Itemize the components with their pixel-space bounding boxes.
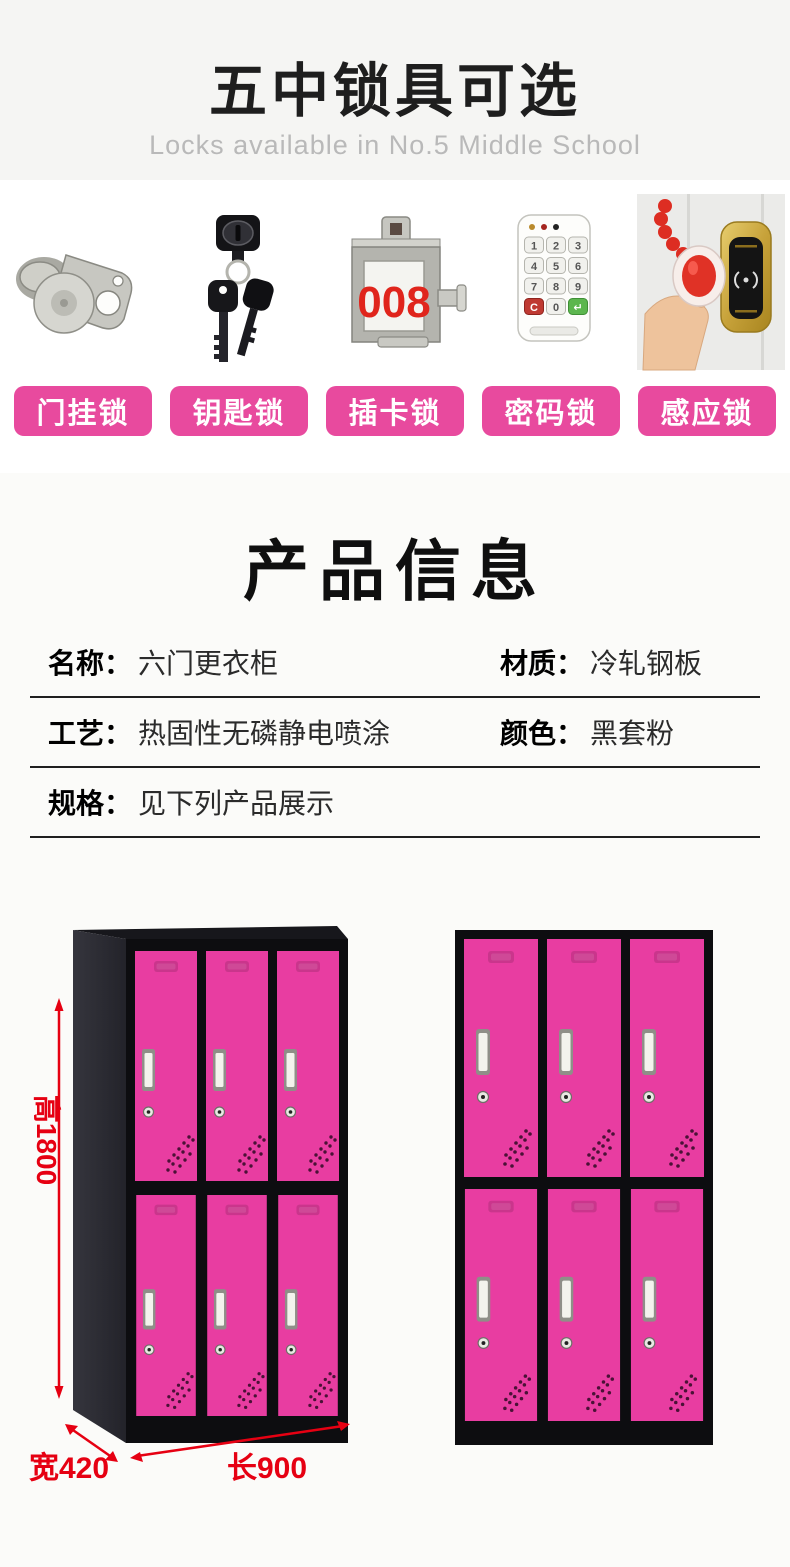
spec-value: 冷轧钢板 bbox=[590, 642, 702, 682]
keypad-key-1: 1 bbox=[531, 241, 537, 253]
spec-label: 规格： bbox=[30, 782, 132, 822]
keypad-key-4: 4 bbox=[531, 261, 538, 273]
page-title: 五中锁具可选 bbox=[0, 44, 790, 128]
spec-material: 材质： 冷轧钢板 bbox=[482, 642, 702, 682]
locker-3d-figure: 高1800 宽420 长900 bbox=[15, 918, 400, 1490]
spec-value: 六门更衣柜 bbox=[138, 642, 278, 682]
lock-card-key bbox=[158, 183, 316, 381]
key-lock-icon bbox=[162, 187, 312, 377]
table-row: 工艺： 热固性无磷静电喷涂 颜色： 黑套粉 bbox=[30, 698, 760, 768]
lock-type-button-card[interactable]: 插卡锁 bbox=[326, 386, 464, 436]
keypad-key-5: 5 bbox=[553, 261, 559, 273]
spec-value: 见下列产品展示 bbox=[138, 782, 334, 822]
spec-label: 工艺： bbox=[30, 712, 132, 752]
lock-card-keypad: 1 2 3 4 5 6 7 8 9 C 0 ↵ bbox=[474, 183, 632, 381]
lock-card-number: 008 bbox=[316, 183, 474, 381]
locker-front-drawing bbox=[455, 930, 713, 1445]
spec-value: 热固性无磷静电喷涂 bbox=[138, 712, 390, 752]
product-detail-page: 五中锁具可选 Locks available in No.5 Middle Sc… bbox=[0, 0, 790, 1567]
spec-value: 黑套粉 bbox=[590, 712, 674, 752]
card-lock-number: 008 bbox=[357, 278, 430, 327]
locker-front-figure bbox=[455, 930, 713, 1445]
keypad-key-clear: C bbox=[530, 302, 538, 314]
rfid-lock-icon bbox=[635, 192, 787, 372]
lock-type-button-key[interactable]: 钥匙锁 bbox=[170, 386, 308, 436]
spec-table: 名称： 六门更衣柜 材质： 冷轧钢板 工艺： 热固性无磷静电喷涂 颜色： 黑套粉… bbox=[30, 628, 760, 838]
spec-process: 工艺： 热固性无磷静电喷涂 bbox=[30, 712, 482, 752]
lock-type-button-keypad[interactable]: 密码锁 bbox=[482, 386, 620, 436]
keypad-key-9: 9 bbox=[575, 282, 581, 294]
dimension-width-label: 宽420 bbox=[29, 1451, 109, 1485]
spec-label: 颜色： bbox=[482, 712, 584, 752]
keypad-key-2: 2 bbox=[553, 241, 559, 253]
table-row: 名称： 六门更衣柜 材质： 冷轧钢板 bbox=[30, 628, 760, 698]
lock-card-rfid bbox=[632, 183, 790, 381]
dimension-length-label: 长900 bbox=[227, 1452, 307, 1485]
lock-type-button-rfid[interactable]: 感应锁 bbox=[638, 386, 776, 436]
card-lock-icon: 008 bbox=[320, 187, 470, 377]
keypad-key-3: 3 bbox=[575, 241, 581, 253]
key-left bbox=[208, 280, 238, 362]
spec-label: 名称： bbox=[30, 642, 132, 682]
dimension-height-label: 高1800 bbox=[31, 1095, 62, 1185]
lock-type-buttons: 门挂锁 钥匙锁 插卡锁 密码锁 感应锁 bbox=[0, 386, 790, 436]
locker-3d-drawing: 高1800 宽420 长900 bbox=[15, 918, 400, 1490]
lock-card-hasp bbox=[0, 183, 158, 381]
keypad-key-7: 7 bbox=[531, 282, 537, 294]
lock-type-button-hasp[interactable]: 门挂锁 bbox=[14, 386, 152, 436]
hasp-lock-icon bbox=[4, 187, 154, 377]
lock-photos-row: 008 bbox=[0, 183, 790, 381]
spec-size: 规格： 见下列产品展示 bbox=[30, 782, 482, 822]
keypad-key-enter: ↵ bbox=[573, 302, 582, 314]
spec-label: 材质： bbox=[482, 642, 584, 682]
table-row: 规格： 见下列产品展示 bbox=[30, 768, 760, 838]
page-subtitle: Locks available in No.5 Middle School bbox=[0, 130, 790, 161]
spec-color: 颜色： 黑套粉 bbox=[482, 712, 674, 752]
spec-name: 名称： 六门更衣柜 bbox=[30, 642, 482, 682]
product-info-title: 产品信息 bbox=[0, 518, 790, 614]
keypad-key-0: 0 bbox=[553, 302, 559, 314]
keypad-lock-icon: 1 2 3 4 5 6 7 8 9 C 0 ↵ bbox=[478, 187, 628, 377]
keypad-key-8: 8 bbox=[553, 282, 559, 294]
keypad-key-6: 6 bbox=[575, 261, 581, 273]
